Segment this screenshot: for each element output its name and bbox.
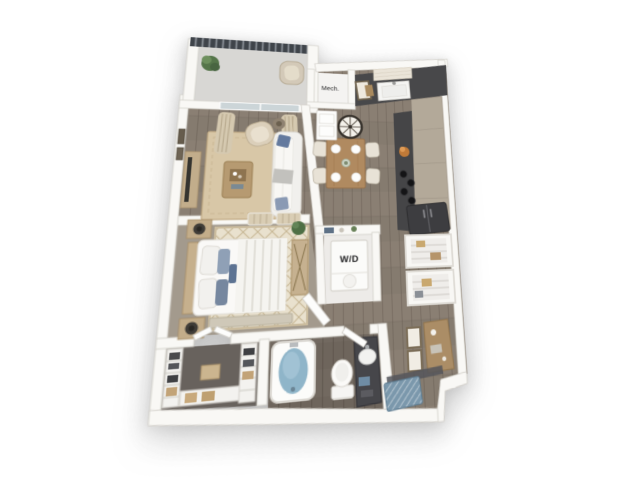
closet-island	[200, 364, 220, 380]
balcony-chair-cushion	[284, 65, 300, 81]
place-setting-2	[351, 145, 360, 154]
burner-3	[400, 188, 408, 195]
bathtub	[270, 340, 315, 403]
vanity	[354, 336, 381, 407]
mech-right-wall	[348, 70, 355, 109]
mech-door	[316, 110, 336, 140]
wall-clock	[339, 115, 362, 138]
bottom-wall-right	[436, 372, 470, 422]
bedroom-window-left	[248, 213, 273, 225]
closet-shelf-right	[239, 343, 258, 403]
sofa-pillow-bottom	[275, 197, 289, 211]
laundry-closet: W/D	[331, 240, 368, 291]
washer-dryer-label: W/D	[340, 254, 359, 265]
accent-pillow-bottom	[215, 279, 229, 306]
dryer-door	[343, 274, 356, 288]
accent-pillow-top	[217, 249, 231, 275]
toilet	[332, 359, 354, 399]
floorplan-render: W/D Mech.	[148, 45, 468, 427]
pantry-unit-top	[405, 234, 453, 267]
desk-art-frame-b	[408, 350, 422, 372]
sofa-throw	[272, 169, 293, 185]
floorplan-canvas: W/D Mech.	[129, 29, 482, 460]
place-setting-1	[331, 144, 340, 153]
ledge-books	[324, 227, 334, 233]
bed-pillow-bottom	[198, 278, 217, 309]
refrigerator	[406, 202, 450, 235]
dining-chair-4	[366, 168, 380, 184]
place-setting-3	[331, 173, 340, 182]
mech-left-wall	[307, 69, 315, 107]
vanity-tray	[361, 389, 373, 397]
lumbar-pillow	[228, 264, 237, 283]
place-setting-4	[352, 173, 361, 182]
vanity-towel	[359, 376, 370, 386]
laundry-right-wall	[372, 232, 381, 301]
wall-art-frame-a	[178, 129, 186, 144]
mech-closet-label: Mech.	[321, 86, 339, 93]
floorplan-image: W/D Mech.	[0, 0, 640, 480]
wall-art-frame-b	[176, 148, 184, 160]
nightstand-top	[186, 220, 212, 239]
dining-chair-2	[313, 168, 328, 184]
dresser	[291, 240, 308, 296]
burner-2	[407, 179, 415, 186]
bathtub-faucet	[290, 342, 299, 347]
dining-chair-1	[313, 141, 328, 157]
bedroom	[178, 212, 331, 339]
dining-chair-3	[365, 142, 380, 157]
sofa	[271, 132, 303, 217]
coffee-table	[222, 161, 253, 197]
desk-art-frame-a	[407, 327, 421, 348]
burner-1	[400, 170, 408, 177]
pantry-unit-bottom	[406, 270, 455, 306]
burner-4	[408, 197, 416, 205]
